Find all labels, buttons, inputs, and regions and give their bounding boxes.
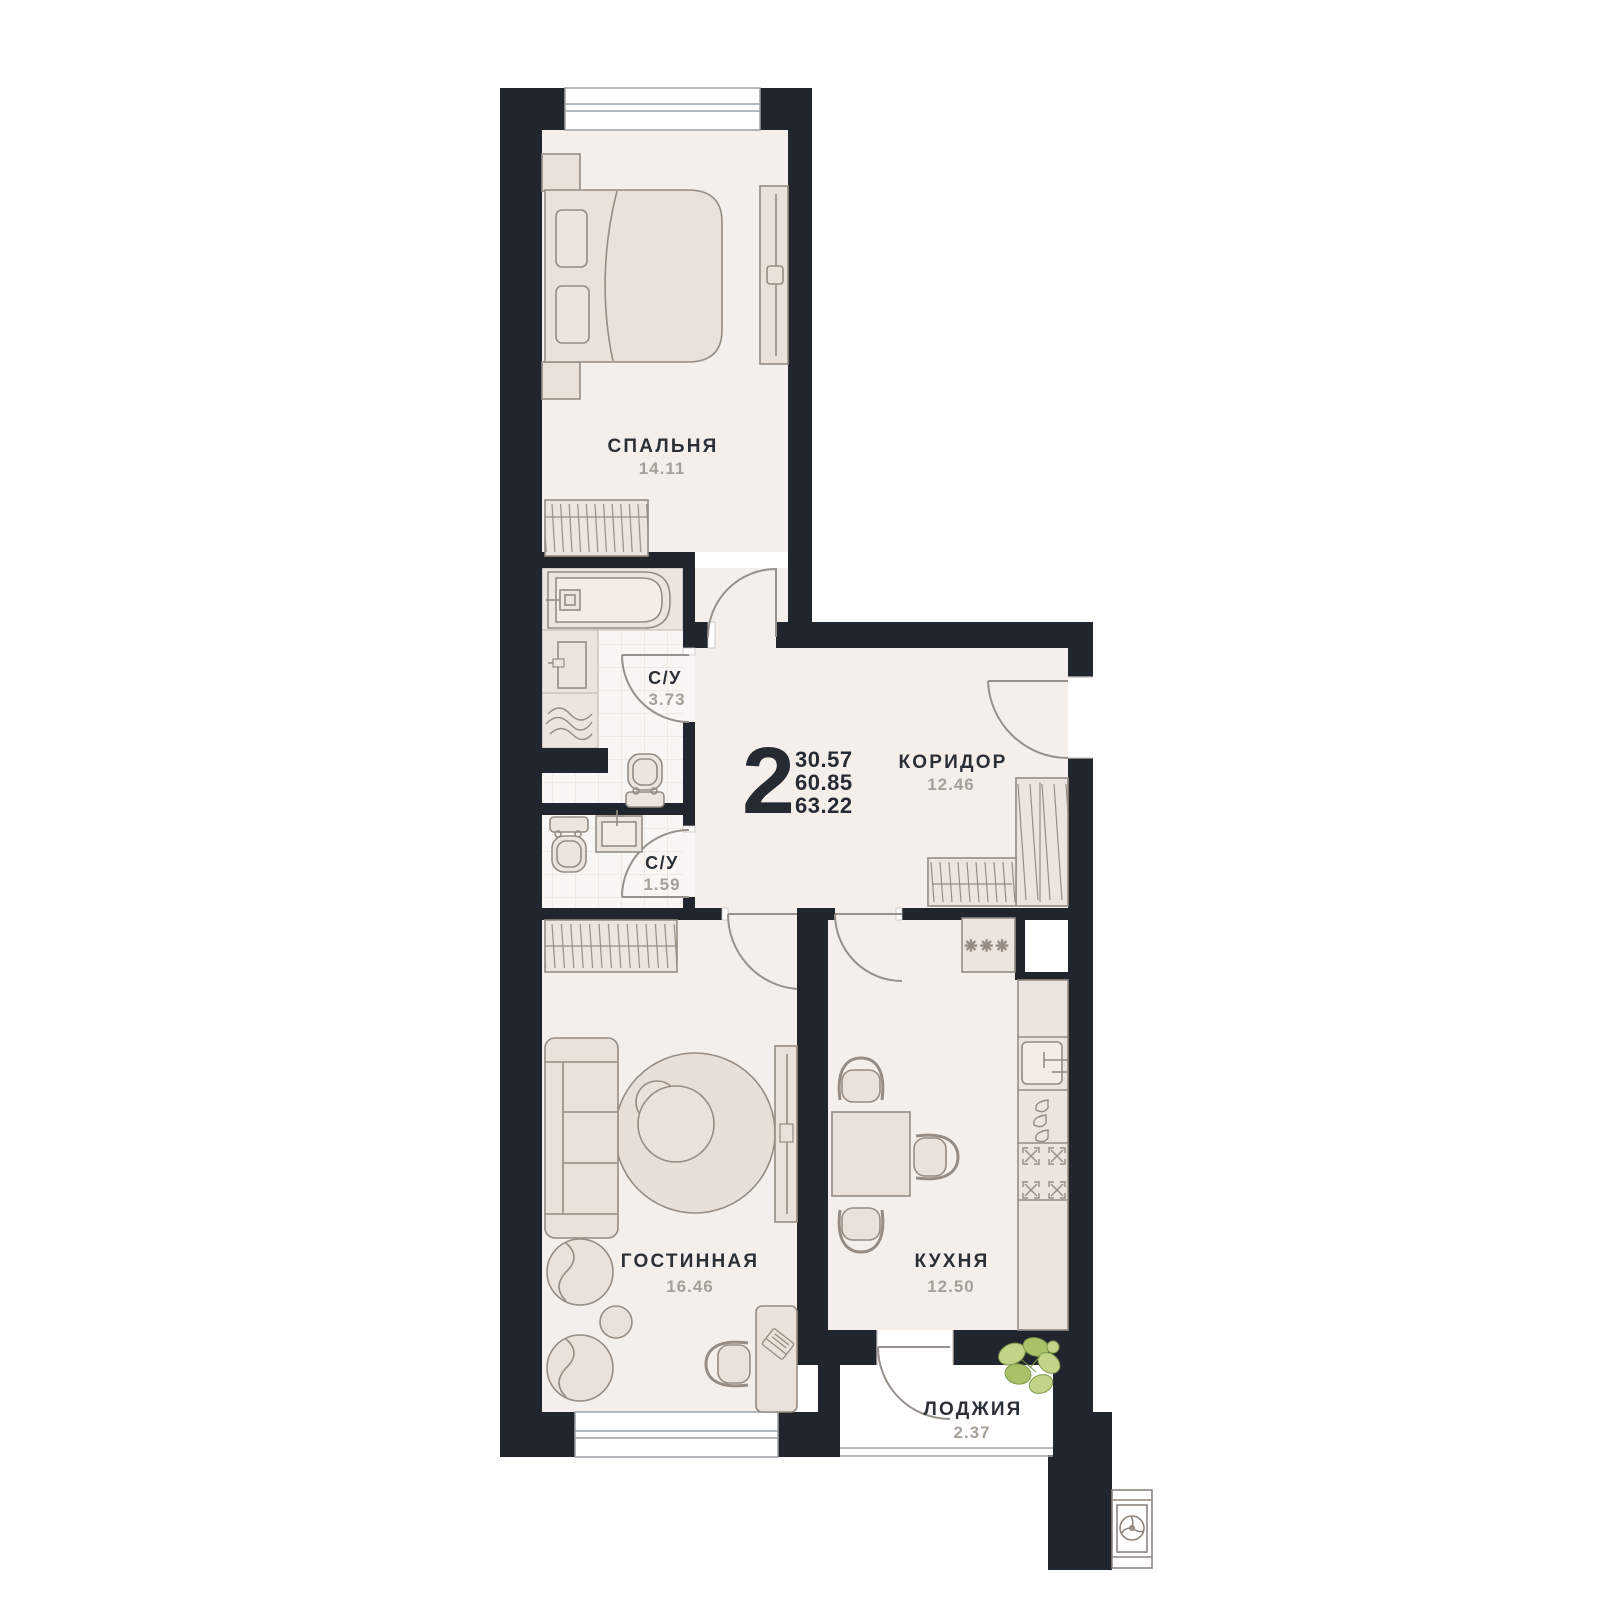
kitchen-label: КУХНЯ bbox=[915, 1251, 990, 1272]
kitchen-sink bbox=[1022, 1042, 1068, 1084]
sink bbox=[596, 810, 642, 852]
sofa bbox=[545, 1038, 618, 1238]
corridor-wardrobe-tall bbox=[1016, 778, 1068, 906]
bathtub bbox=[546, 572, 670, 628]
corridor-wardrobe-small bbox=[928, 858, 1016, 906]
floor-plan: ✳✳✳ bbox=[0, 0, 1600, 1600]
fridge: ✳✳✳ bbox=[962, 918, 1015, 972]
round-table bbox=[638, 1086, 714, 1162]
toilet-label: С/У bbox=[645, 853, 679, 873]
floor-plan-page: ✳✳✳ bbox=[0, 0, 1600, 1600]
area-total-value: 60.85 bbox=[795, 770, 853, 795]
desk bbox=[756, 1306, 797, 1412]
bedroom-area: 14.11 bbox=[639, 459, 686, 478]
side-table bbox=[600, 1306, 632, 1338]
loggia-area: 2.37 bbox=[953, 1423, 990, 1442]
kitchen-counter bbox=[1018, 980, 1068, 1330]
bathroom-area: 3.73 bbox=[648, 690, 685, 709]
bedroom-window bbox=[565, 88, 760, 130]
living-window bbox=[575, 1412, 778, 1457]
tv-console bbox=[775, 1046, 797, 1222]
nightstand bbox=[542, 362, 580, 399]
living-area: 16.46 bbox=[666, 1277, 714, 1296]
pillow bbox=[556, 210, 587, 267]
rooms-count: 2 bbox=[742, 728, 795, 834]
beanbag-chair bbox=[547, 1335, 613, 1401]
beanbag-chair bbox=[547, 1239, 613, 1305]
pillow bbox=[556, 286, 589, 343]
wardrobe-handle bbox=[767, 266, 783, 284]
bedroom-label: СПАЛЬНЯ bbox=[607, 436, 718, 457]
living-open-wardrobe bbox=[545, 920, 677, 972]
bedroom-alcove bbox=[695, 568, 788, 622]
vent-unit bbox=[1112, 1490, 1152, 1568]
corridor-area: 12.46 bbox=[927, 775, 975, 794]
toilet-area: 1.59 bbox=[643, 875, 680, 894]
fridge-stars-icon: ✳✳✳ bbox=[965, 938, 1012, 955]
toilet bbox=[626, 754, 664, 807]
toilet bbox=[550, 817, 588, 872]
living-label: ГОСТИННАЯ bbox=[621, 1251, 759, 1272]
corridor-label: КОРИДОР bbox=[898, 752, 1007, 773]
bathroom-label: С/У bbox=[648, 668, 682, 688]
duct-niche bbox=[1025, 920, 1068, 972]
bedroom-open-wardrobe bbox=[545, 500, 648, 556]
nightstand bbox=[542, 154, 580, 191]
loggia-label: ЛОДЖИЯ bbox=[923, 1399, 1022, 1420]
kitchen-area: 12.50 bbox=[927, 1277, 975, 1296]
dining-table bbox=[832, 1112, 910, 1196]
loggia-window bbox=[840, 1448, 1053, 1456]
area-living-value: 30.57 bbox=[795, 747, 853, 772]
area-full-value: 63.22 bbox=[795, 793, 853, 818]
